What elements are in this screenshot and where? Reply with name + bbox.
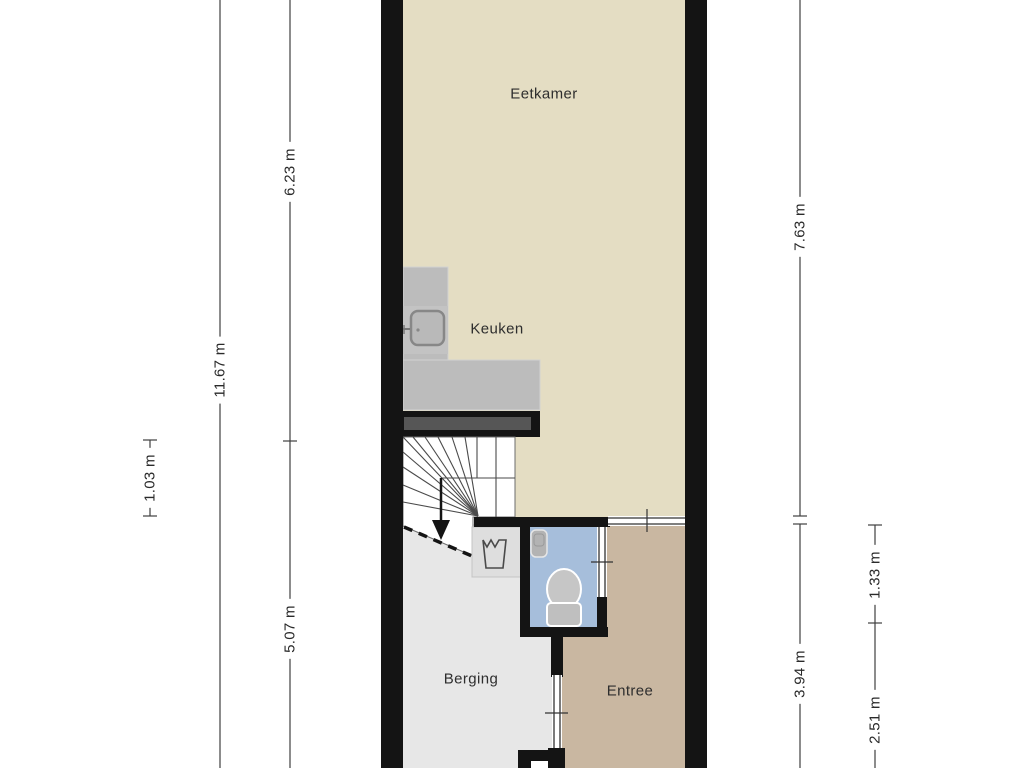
room-label-entree: Entree — [607, 683, 654, 700]
floor-plan-svg — [0, 0, 1024, 768]
bottom-niche — [531, 761, 548, 768]
hand-basin-icon — [531, 530, 547, 557]
dim-label-3-94: 3.94 m — [791, 644, 810, 704]
laundry-area — [472, 527, 523, 577]
dim-label-1-03: 1.03 m — [141, 448, 160, 508]
dim-label-11-67: 11.67 m — [211, 336, 230, 403]
dim-label-6-23: 6.23 m — [281, 142, 300, 202]
floorplan-canvas: Eetkamer Keuken Berging Entree 11.67 m 6… — [0, 0, 1024, 768]
dim-label-1-33: 1.33 m — [866, 545, 885, 605]
dim-label-5-07: 5.07 m — [281, 599, 300, 659]
room-label-eetkamer: Eetkamer — [510, 86, 577, 103]
room-label-keuken: Keuken — [470, 321, 523, 338]
room-label-berging: Berging — [444, 671, 499, 688]
dim-label-7-63: 7.63 m — [791, 197, 810, 257]
toilet-icon — [547, 569, 581, 626]
kitchen-stairs-wall — [392, 411, 540, 437]
dim-label-2-51: 2.51 m — [866, 690, 885, 750]
